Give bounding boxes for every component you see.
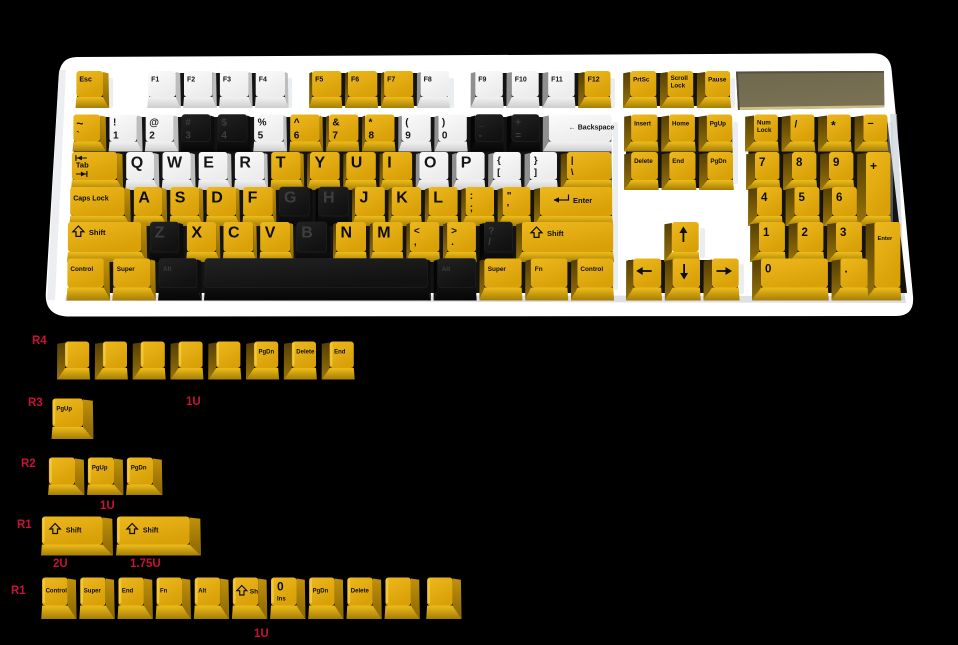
svg-text:P: P	[461, 155, 472, 172]
svg-text:F8: F8	[424, 77, 432, 84]
svg-text:7: 7	[332, 131, 338, 142]
svg-text:+: +	[870, 159, 877, 173]
svg-text:M: M	[377, 225, 390, 242]
svg-text:R3: R3	[28, 397, 43, 409]
svg-text:Scroll: Scroll	[671, 75, 688, 82]
svg-text:!: !	[113, 118, 116, 129]
svg-text:6: 6	[294, 131, 300, 142]
svg-text:.: .	[845, 264, 848, 276]
svg-text:Super: Super	[117, 266, 136, 273]
svg-text:\: \	[571, 167, 574, 178]
svg-text:PrtSc: PrtSc	[633, 77, 650, 84]
svg-text:.: .	[451, 237, 454, 248]
svg-text:Super: Super	[84, 589, 102, 595]
svg-text:8: 8	[796, 157, 803, 169]
svg-text:0: 0	[442, 131, 448, 142]
svg-text:–: –	[868, 118, 874, 130]
svg-text:R4: R4	[32, 335, 47, 347]
svg-text:0: 0	[765, 264, 771, 276]
svg-text:^: ^	[294, 118, 300, 129]
svg-text:1: 1	[763, 227, 770, 239]
svg-text:Super: Super	[488, 266, 507, 273]
svg-text:4: 4	[761, 192, 768, 204]
svg-text:End: End	[122, 589, 134, 595]
svg-text::: :	[470, 191, 473, 202]
svg-text:A: A	[138, 190, 150, 207]
svg-text:2U: 2U	[53, 558, 68, 570]
svg-text:1U: 1U	[100, 500, 115, 512]
svg-text:F2: F2	[187, 77, 195, 84]
svg-text:S: S	[175, 190, 186, 207]
svg-text:D: D	[211, 190, 223, 207]
svg-text:1U: 1U	[186, 396, 201, 408]
svg-text:Lock: Lock	[671, 83, 686, 90]
svg-text:|: |	[571, 155, 574, 166]
svg-text:?: ?	[488, 226, 494, 237]
svg-text:Pause: Pause	[708, 77, 727, 84]
svg-text:T: T	[276, 155, 286, 172]
svg-text:3: 3	[840, 227, 846, 239]
svg-text:&: &	[332, 118, 339, 129]
svg-text:PgDn: PgDn	[313, 589, 329, 595]
svg-text:W: W	[167, 155, 183, 172]
svg-text:Alt: Alt	[198, 589, 206, 595]
svg-text:Control: Control	[70, 266, 93, 273]
svg-text:@: @	[149, 118, 159, 129]
svg-text:7: 7	[759, 157, 765, 169]
svg-text:Alt: Alt	[442, 266, 451, 273]
svg-text:Fn: Fn	[160, 589, 168, 595]
svg-text:): )	[442, 118, 445, 129]
svg-text:Fn: Fn	[535, 266, 543, 273]
svg-text:': '	[507, 203, 509, 214]
svg-text:F9: F9	[478, 77, 486, 84]
svg-text:Shift: Shift	[547, 229, 564, 238]
svg-text:`: `	[76, 131, 79, 142]
svg-text:1.75U: 1.75U	[130, 558, 161, 570]
svg-text:B: B	[301, 225, 313, 242]
svg-text:Delete: Delete	[296, 350, 315, 356]
svg-text:}: }	[534, 155, 538, 166]
svg-text:$: $	[221, 118, 227, 129]
svg-text:3: 3	[185, 131, 191, 142]
svg-text:Tab: Tab	[76, 161, 89, 170]
svg-text:O: O	[424, 155, 436, 172]
svg-text:9: 9	[405, 131, 411, 142]
svg-text:Alt: Alt	[163, 266, 172, 273]
svg-text:Shift: Shift	[89, 228, 106, 237]
svg-text:Esc: Esc	[79, 77, 92, 84]
svg-text:Q: Q	[131, 155, 143, 172]
svg-text:F7: F7	[387, 77, 395, 84]
svg-text:Shift: Shift	[143, 528, 159, 535]
svg-text:PgUp: PgUp	[92, 466, 108, 472]
svg-text:/: /	[795, 120, 798, 131]
svg-text:+: +	[515, 118, 521, 129]
svg-text:E: E	[203, 155, 214, 172]
svg-text:Delete: Delete	[351, 589, 370, 595]
svg-text:F4: F4	[259, 77, 267, 84]
svg-text:End: End	[334, 350, 346, 356]
svg-text:V: V	[265, 225, 276, 242]
svg-text:5: 5	[258, 131, 264, 142]
svg-text:Shift: Shift	[66, 528, 82, 535]
svg-text:_: _	[478, 118, 485, 129]
svg-text:J: J	[360, 190, 369, 207]
svg-text:Z: Z	[155, 225, 165, 242]
svg-text:1: 1	[113, 131, 119, 142]
svg-text:/: /	[488, 237, 491, 248]
svg-text:9: 9	[833, 157, 839, 169]
svg-text:F10: F10	[515, 77, 527, 84]
svg-text:Delete: Delete	[634, 158, 653, 165]
svg-text:Control: Control	[580, 266, 603, 273]
svg-text:F6: F6	[351, 77, 359, 84]
svg-text:F5: F5	[315, 77, 323, 84]
svg-text:{: {	[497, 155, 501, 166]
svg-text:End: End	[672, 158, 684, 165]
svg-text:Enter: Enter	[573, 196, 592, 205]
svg-text:2: 2	[149, 131, 155, 142]
svg-text:#: #	[185, 118, 191, 129]
svg-text:K: K	[396, 190, 408, 207]
svg-text:1U: 1U	[254, 628, 269, 640]
svg-text:PgDn: PgDn	[710, 158, 726, 165]
svg-text:4: 4	[221, 131, 227, 142]
svg-text:PgDn: PgDn	[131, 466, 147, 472]
svg-text:I: I	[387, 155, 391, 172]
svg-text:=: =	[515, 131, 521, 142]
svg-text:>: >	[451, 226, 457, 237]
svg-text:6: 6	[836, 192, 842, 204]
svg-text:Num: Num	[757, 120, 771, 127]
svg-text:%: %	[258, 118, 267, 129]
svg-text:5: 5	[799, 192, 806, 204]
svg-text:Enter: Enter	[878, 236, 894, 242]
svg-text:F1: F1	[151, 77, 159, 84]
svg-text:Sh: Sh	[250, 589, 258, 596]
svg-text:2: 2	[802, 227, 808, 239]
svg-text:0: 0	[277, 580, 284, 594]
svg-text:Ins: Ins	[277, 597, 286, 603]
svg-text:H: H	[323, 190, 335, 207]
svg-text:U: U	[351, 155, 363, 172]
svg-text:F: F	[248, 190, 258, 207]
svg-text:Home: Home	[672, 121, 690, 128]
svg-text:F3: F3	[223, 77, 231, 84]
svg-text:R: R	[239, 155, 251, 172]
svg-text:N: N	[341, 225, 353, 242]
svg-text:PgUp: PgUp	[710, 121, 726, 128]
svg-text:;: ;	[470, 203, 473, 214]
svg-text:Caps Lock: Caps Lock	[73, 196, 109, 203]
svg-text:← Backspace: ← Backspace	[569, 125, 615, 132]
svg-text:8: 8	[369, 131, 375, 142]
svg-text:R1: R1	[11, 585, 26, 597]
svg-text:X: X	[191, 225, 202, 242]
svg-text:Control: Control	[46, 589, 68, 595]
svg-text:R2: R2	[21, 458, 36, 470]
svg-text:,: ,	[414, 237, 417, 248]
svg-text:C: C	[228, 225, 240, 242]
svg-text:R1: R1	[17, 519, 32, 531]
svg-text:": "	[507, 191, 512, 202]
svg-text:Insert: Insert	[634, 121, 651, 128]
svg-text:*: *	[369, 118, 373, 129]
svg-text:F12: F12	[588, 77, 600, 84]
svg-text:-: -	[479, 131, 482, 142]
svg-text:Y: Y	[315, 155, 326, 172]
svg-text:L: L	[433, 190, 443, 207]
svg-text:PgDn: PgDn	[259, 350, 275, 356]
svg-text:]: ]	[534, 167, 537, 178]
svg-text:F11: F11	[551, 77, 563, 84]
svg-text:Lock: Lock	[757, 127, 772, 134]
svg-text:~: ~	[76, 117, 83, 131]
svg-text:PgUp: PgUp	[56, 407, 72, 413]
svg-text:G: G	[284, 190, 296, 207]
svg-text:<: <	[414, 226, 420, 237]
svg-text:*: *	[831, 119, 836, 133]
